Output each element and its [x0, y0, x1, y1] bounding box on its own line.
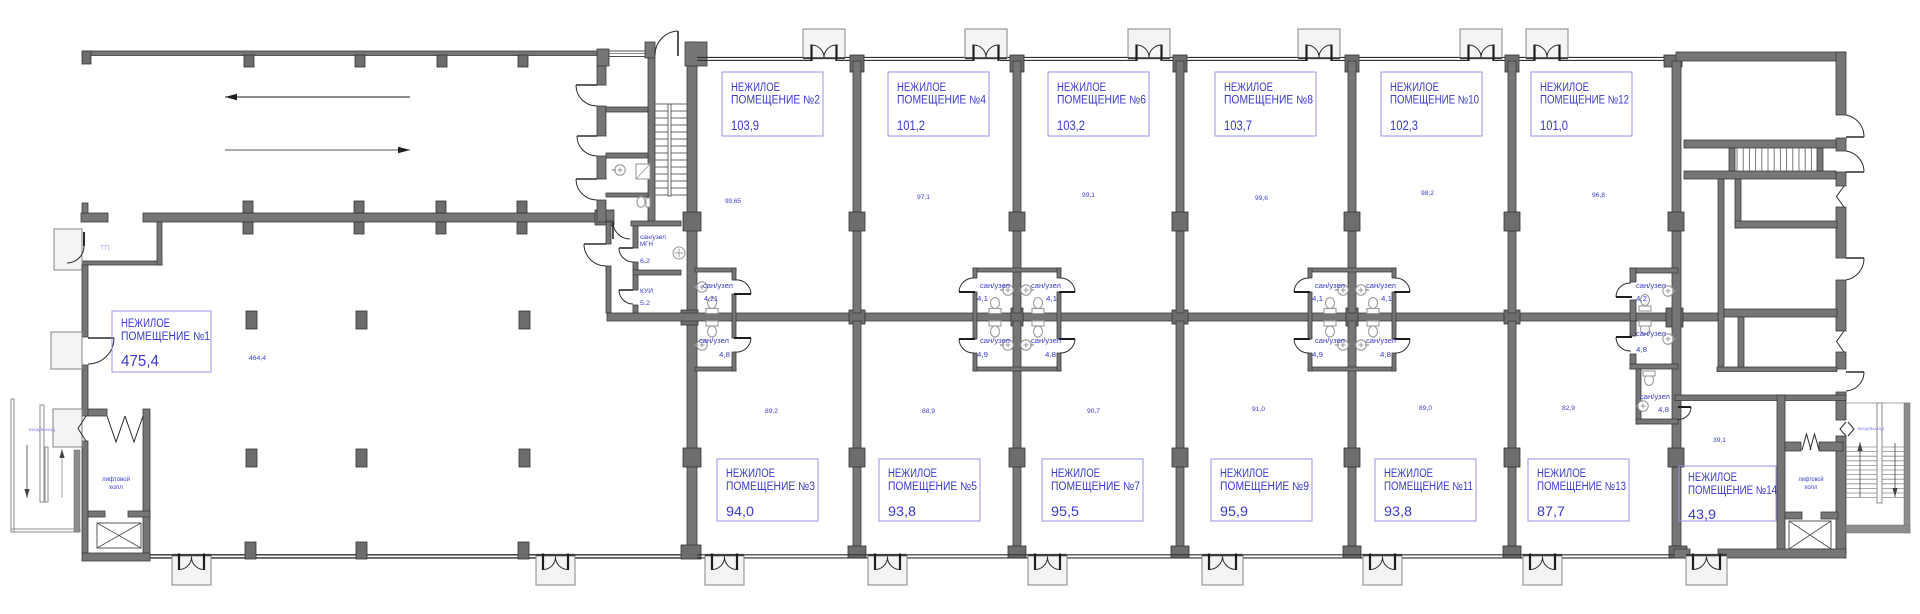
svg-text:ПОМЕЩЕНИЕ №8: ПОМЕЩЕНИЕ №8: [1224, 95, 1313, 107]
svg-text:4,8: 4,8: [1045, 352, 1056, 359]
svg-text:99,6: 99,6: [1255, 195, 1268, 202]
svg-text:97,1: 97,1: [917, 194, 930, 201]
svg-text:88,9: 88,9: [922, 408, 935, 415]
svg-text:39,1: 39,1: [1713, 437, 1726, 444]
svg-text:сан/узел: сан/узел: [1636, 283, 1666, 290]
svg-text:НЕЖИЛОЕ: НЕЖИЛОЕ: [1540, 82, 1589, 94]
svg-text:103,7: 103,7: [1224, 118, 1252, 133]
svg-text:90,7: 90,7: [1087, 408, 1100, 415]
svg-text:сан/узел: сан/узел: [980, 283, 1010, 290]
svg-text:ПОМЕЩЕНИЕ №3: ПОМЕЩЕНИЕ №3: [726, 481, 815, 493]
svg-text:сан/узел: сан/узел: [699, 338, 729, 345]
svg-text:ПОМЕЩЕНИЕ №7: ПОМЕЩЕНИЕ №7: [1051, 481, 1140, 493]
svg-text:лифтовой: лифтовой: [102, 475, 130, 483]
svg-text:4,1: 4,1: [1312, 296, 1323, 303]
svg-text:сан/узел: сан/узел: [1315, 283, 1345, 290]
svg-text:93,8: 93,8: [1384, 504, 1412, 519]
svg-text:сан/узел: сан/узел: [1315, 338, 1345, 345]
svg-text:ПОМЕЩЕНИЕ №9: ПОМЕЩЕНИЕ №9: [1220, 481, 1309, 493]
svg-text:89,0: 89,0: [1419, 405, 1432, 412]
svg-text:4,1: 4,1: [1046, 296, 1057, 303]
svg-text:сан/узел: сан/узел: [980, 338, 1010, 345]
svg-text:103,2: 103,2: [1057, 118, 1085, 133]
svg-text:НЕЖИЛОЕ: НЕЖИЛОЕ: [1057, 82, 1106, 94]
svg-text:НЕЖИЛОЕ: НЕЖИЛОЕ: [1390, 82, 1439, 94]
svg-text:вход/выход: вход/выход: [1858, 426, 1884, 431]
svg-text:сан/узел: сан/узел: [1031, 283, 1061, 290]
svg-text:101,0: 101,0: [1540, 118, 1568, 133]
svg-text:43,9: 43,9: [1688, 507, 1716, 522]
svg-text:сан/узел: сан/узел: [1366, 283, 1396, 290]
svg-text:101,2: 101,2: [897, 118, 925, 133]
svg-text:89,2: 89,2: [765, 408, 778, 415]
svg-text:НЕЖИЛОЕ: НЕЖИЛОЕ: [731, 82, 780, 94]
svg-text:ПОМЕЩЕНИЕ №5: ПОМЕЩЕНИЕ №5: [888, 481, 977, 493]
svg-text:сан/узел: сан/узел: [1640, 394, 1670, 401]
svg-text:99,1: 99,1: [1082, 192, 1095, 199]
svg-text:5,2: 5,2: [640, 300, 650, 307]
svg-text:МГН: МГН: [640, 241, 653, 248]
svg-text:4,8: 4,8: [1636, 347, 1647, 354]
svg-text:НЕЖИЛОЕ: НЕЖИЛОЕ: [1220, 468, 1269, 480]
svg-text:ПОМЕЩЕНИЕ №4: ПОМЕЩЕНИЕ №4: [897, 95, 987, 107]
svg-text:НЕЖИЛОЕ: НЕЖИЛОЕ: [1688, 472, 1737, 484]
svg-text:КУИ: КУИ: [640, 288, 653, 295]
svg-text:НЕЖИЛОЕ: НЕЖИЛОЕ: [1051, 468, 1100, 480]
svg-text:95,5: 95,5: [1051, 504, 1079, 519]
svg-text:98,2: 98,2: [1421, 190, 1434, 197]
svg-text:4,21: 4,21: [704, 296, 718, 303]
svg-text:НЕЖИЛОЕ: НЕЖИЛОЕ: [121, 318, 170, 330]
svg-text:87,7: 87,7: [1537, 504, 1565, 519]
svg-text:НЕЖИЛОЕ: НЕЖИЛОЕ: [1384, 468, 1433, 480]
svg-text:НЕЖИЛОЕ: НЕЖИЛОЕ: [1537, 468, 1586, 480]
svg-text:ПОМЕЩЕНИЕ №11: ПОМЕЩЕНИЕ №11: [1384, 481, 1473, 493]
svg-text:6,2: 6,2: [640, 258, 650, 265]
svg-text:93,8: 93,8: [888, 504, 916, 519]
svg-text:464,4: 464,4: [249, 355, 266, 362]
svg-text:91,0: 91,0: [1252, 406, 1265, 413]
svg-text:ТП: ТП: [100, 245, 109, 252]
svg-text:холл: холл: [1805, 485, 1818, 491]
svg-text:4,8: 4,8: [1658, 407, 1669, 414]
svg-text:сан/узел: сан/узел: [1031, 338, 1061, 345]
svg-text:95,9: 95,9: [1220, 504, 1248, 519]
svg-text:ПОМЕЩЕНИЕ №14: ПОМЕЩЕНИЕ №14: [1688, 485, 1778, 497]
svg-text:сан/узел: сан/узел: [640, 234, 666, 241]
svg-text:103,9: 103,9: [731, 118, 759, 133]
svg-text:96,8: 96,8: [1592, 192, 1605, 199]
svg-text:холл: холл: [109, 484, 123, 491]
svg-text:4,8: 4,8: [1380, 352, 1391, 359]
svg-text:4,2: 4,2: [1636, 296, 1647, 303]
svg-text:лифтовой: лифтовой: [1799, 476, 1824, 483]
svg-text:4,8: 4,8: [719, 352, 730, 359]
svg-text:сан/узел: сан/узел: [1636, 331, 1666, 338]
svg-text:сан/узел: сан/узел: [1366, 338, 1396, 345]
svg-text:ПОМЕЩЕНИЕ №1: ПОМЕЩЕНИЕ №1: [121, 331, 210, 343]
svg-text:ПОМЕЩЕНИЕ №2: ПОМЕЩЕНИЕ №2: [731, 95, 820, 107]
svg-text:НЕЖИЛОЕ: НЕЖИЛОЕ: [1224, 82, 1273, 94]
svg-text:4,1: 4,1: [977, 296, 988, 303]
svg-text:вход/выход: вход/выход: [29, 427, 55, 432]
svg-text:ПОМЕЩЕНИЕ №13: ПОМЕЩЕНИЕ №13: [1537, 481, 1626, 493]
svg-text:НЕЖИЛОЕ: НЕЖИЛОЕ: [888, 468, 937, 480]
svg-text:4,1: 4,1: [1381, 296, 1392, 303]
svg-text:ПОМЕЩЕНИЕ №6: ПОМЕЩЕНИЕ №6: [1057, 95, 1146, 107]
svg-text:94,0: 94,0: [726, 504, 754, 519]
svg-text:475,4: 475,4: [121, 353, 159, 370]
svg-text:сан/узел: сан/узел: [703, 283, 733, 290]
svg-text:4,9: 4,9: [977, 352, 988, 359]
svg-text:102,3: 102,3: [1390, 118, 1418, 133]
svg-text:99,65: 99,65: [725, 198, 741, 205]
svg-text:НЕЖИЛОЕ: НЕЖИЛОЕ: [726, 468, 775, 480]
svg-text:НЕЖИЛОЕ: НЕЖИЛОЕ: [897, 82, 946, 94]
svg-text:82,9: 82,9: [1562, 405, 1575, 412]
svg-text:4,9: 4,9: [1312, 352, 1323, 359]
svg-text:ПОМЕЩЕНИЕ №10: ПОМЕЩЕНИЕ №10: [1390, 95, 1479, 107]
svg-text:ПОМЕЩЕНИЕ №12: ПОМЕЩЕНИЕ №12: [1540, 95, 1629, 107]
